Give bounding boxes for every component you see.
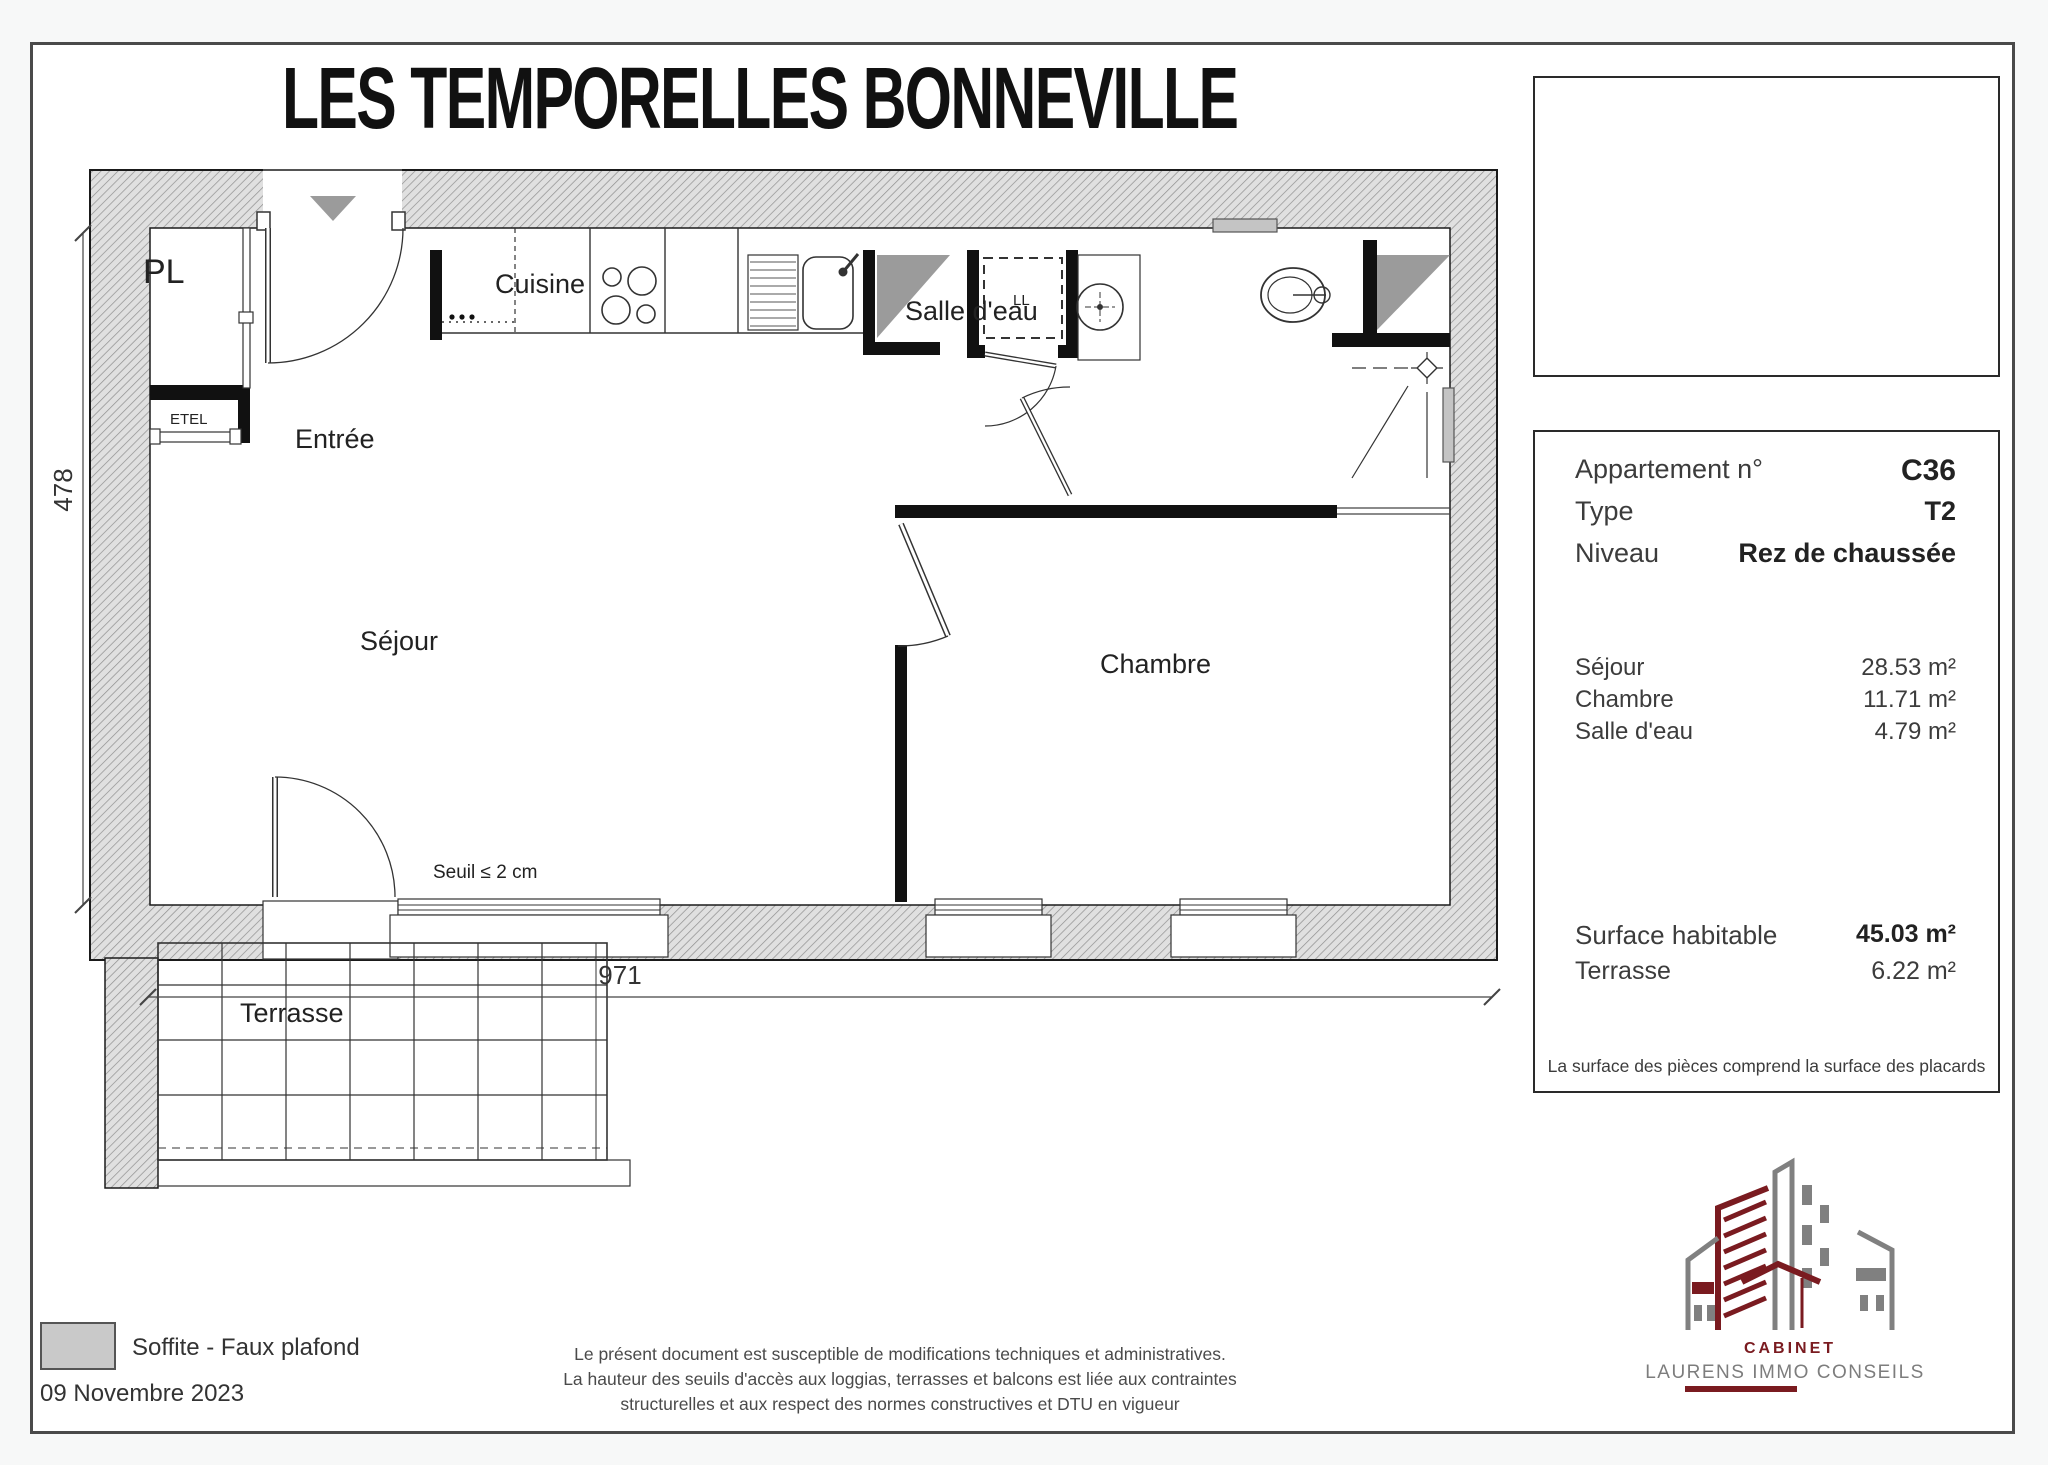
surface-label: Surface habitable	[1575, 920, 1777, 951]
logo-underline	[1685, 1386, 1797, 1392]
apartment-label: Appartement n°	[1575, 454, 1763, 488]
sejour-label: Séjour	[1575, 654, 1644, 682]
soffit-legend-swatch	[40, 1322, 116, 1370]
shower-glass-panel	[1337, 508, 1450, 514]
terrace-wall-stub	[105, 958, 158, 1188]
sejour-area: 28.53 m²	[1861, 654, 1956, 682]
top-wall-window	[1213, 219, 1277, 232]
logo-building-icon	[1688, 1162, 1892, 1330]
disclaimer-line3: structurelles et aux respect des normes …	[460, 1392, 1340, 1417]
exterior-walls	[90, 170, 1497, 1188]
type-value: T2	[1924, 496, 1956, 527]
level-label: Niveau	[1575, 538, 1659, 569]
info-row-salle-deau: Salle d'eau 4.79 m²	[1575, 718, 1956, 746]
apartment-value: C36	[1901, 454, 1956, 488]
chambre-label: Chambre	[1575, 686, 1674, 714]
dimension-width-label: 971	[598, 960, 641, 990]
info-row-type: Type T2	[1575, 496, 1956, 527]
door-jamb	[392, 212, 405, 230]
company-logo: Cabinet LAURENS IMMO CONSEILS	[1645, 1162, 1925, 1392]
disclaimer-line2: La hauteur des seuils d'accès aux loggia…	[460, 1367, 1340, 1392]
room-label-pl: PL	[143, 253, 185, 291]
dimension-lines	[75, 225, 1500, 1005]
apartment-info-panel: Appartement n° C36 Type T2 Niveau Rez de…	[1533, 430, 2000, 1093]
room-label-salle-deau: Salle d'eau	[905, 296, 1038, 326]
room-label-entree: Entrée	[295, 424, 375, 454]
type-label: Type	[1575, 496, 1634, 527]
room-label-cuisine: Cuisine	[495, 269, 585, 299]
disclaimer-text: Le présent document est susceptible de m…	[460, 1342, 1340, 1417]
side-wall-window	[1443, 388, 1454, 462]
terrasse-label: Terrasse	[1575, 957, 1671, 986]
info-row-level: Niveau Rez de chaussée	[1575, 538, 1956, 569]
toilet-icon	[1261, 268, 1330, 322]
level-value: Rez de chaussée	[1738, 538, 1956, 569]
sink-icon	[803, 254, 858, 329]
terrasse-value: 6.22 m²	[1871, 957, 1956, 986]
room-label-etel: ETEL	[170, 411, 208, 428]
dimension-height-label: 478	[48, 468, 78, 511]
room-label-chambre: Chambre	[1100, 649, 1211, 679]
chambre-area: 11.71 m²	[1863, 686, 1956, 714]
info-row-chambre: Chambre 11.71 m²	[1575, 686, 1956, 714]
washbasin-icon	[1077, 284, 1123, 330]
shower-icon	[1352, 352, 1443, 478]
drainboard-icon	[748, 255, 798, 330]
site-plan-panel	[1533, 76, 2000, 377]
info-row-apartment: Appartement n° C36	[1575, 454, 1956, 488]
salle-deau-label: Salle d'eau	[1575, 718, 1693, 746]
terrace-grid	[158, 943, 630, 1186]
window-sill	[926, 915, 1051, 957]
page: LES TEMPORELLES BONNEVILLE	[0, 0, 2048, 1465]
window-sill	[1171, 915, 1296, 957]
door-jamb	[257, 212, 270, 230]
surface-value: 45.03 m²	[1856, 920, 1956, 951]
plan-date: 09 Novembre 2023	[40, 1380, 244, 1408]
info-row-sejour: Séjour 28.53 m²	[1575, 654, 1956, 682]
soffit-legend-label: Soffite - Faux plafond	[132, 1334, 360, 1362]
room-label-terrasse: Terrasse	[240, 998, 344, 1028]
window-sill	[390, 915, 668, 957]
logo-cabinet-text: Cabinet	[1744, 1340, 1836, 1357]
cooktop-icon	[602, 267, 656, 324]
surface-note: La surface des pièces comprend la surfac…	[1545, 1056, 1988, 1077]
disclaimer-line1: Le présent document est susceptible de m…	[460, 1342, 1340, 1367]
room-label-sejour: Séjour	[360, 626, 438, 656]
doors	[268, 228, 1070, 897]
logo-name-text: LAURENS IMMO CONSEILS	[1645, 1362, 1925, 1383]
terrace-door-sill	[263, 901, 398, 959]
info-row-terrasse: Terrasse 6.22 m²	[1575, 957, 1956, 986]
threshold-note: Seuil ≤ 2 cm	[433, 862, 537, 883]
salle-deau-area: 4.79 m²	[1875, 718, 1956, 746]
info-row-surface: Surface habitable 45.03 m²	[1575, 920, 1956, 951]
